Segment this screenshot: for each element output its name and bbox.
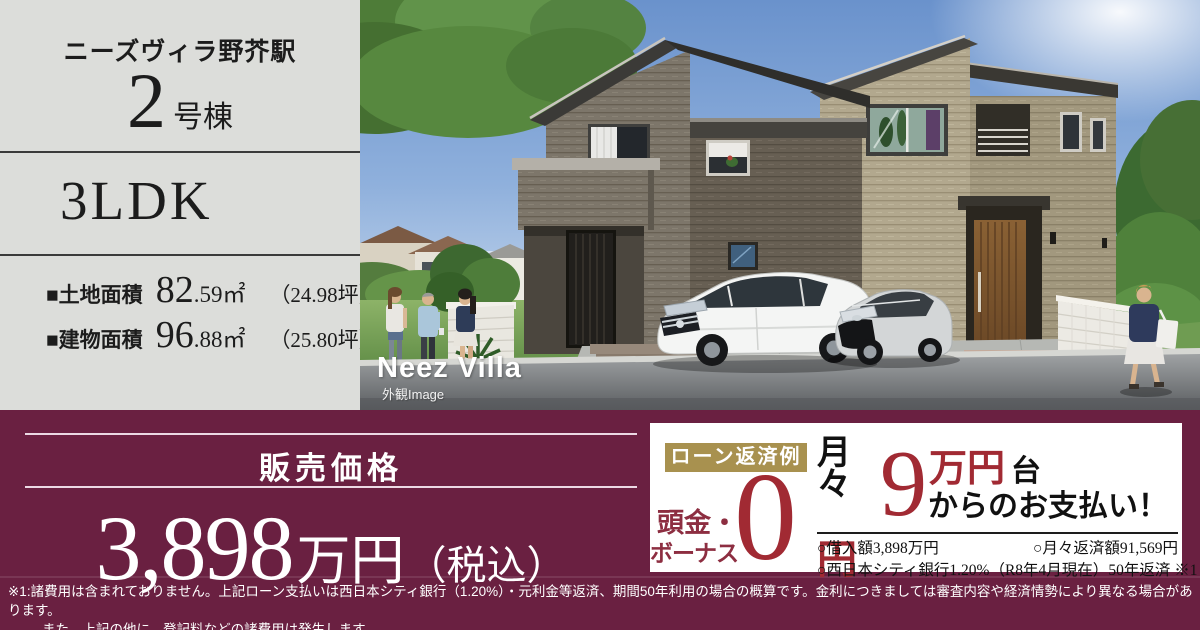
front-door-right <box>966 206 1042 354</box>
rule-line <box>25 486 637 488</box>
price-band: 販売価格 3,898万円（税込） ローン返済例 頭金・ ボーナス 0 円 月 々… <box>0 410 1200 630</box>
exterior-rendering: Neez Villa 外観Image <box>360 0 1200 410</box>
divider <box>0 151 360 153</box>
land-area-row: ■土地面積 82 .59㎡ （24.98坪） <box>46 268 348 308</box>
down-payment-value: 0 <box>734 455 797 581</box>
unit-number: 2 <box>127 57 166 144</box>
loan-detail-row: ○借入額3,898万円 ○月々返済額91,569円 <box>817 539 1178 559</box>
rendering-scene <box>360 0 1200 410</box>
monthly-tagline: からのお支払い！ <box>928 492 1168 522</box>
monthly-suffix: 台 <box>1011 457 1041 487</box>
bank-rate: ○西日本シティ銀行1.20%（R8年4月現在） <box>817 561 1108 581</box>
image-caption: 外観Image <box>382 384 444 403</box>
divider <box>817 532 1178 534</box>
footnote-line2: また、上記の他に、登記料などの諸費用は発生します。 <box>8 620 1198 630</box>
monthly-repayment: ○月々返済額91,569円 <box>1033 539 1178 559</box>
floor-plan: 3LDK <box>60 169 213 232</box>
brand-logo: Neez Villa <box>377 352 522 385</box>
footnotes: ※1:諸費用は含まれておりません。上記ローン支払いは西日本シティ銀行（1.20%… <box>8 582 1198 630</box>
monthly-value: 9 <box>880 437 927 531</box>
loan-example-box: ローン返済例 頭金・ ボーナス 0 円 月 々 9 万円 台 からのお支払い！ … <box>650 423 1182 572</box>
unit-suffix: 号棟 <box>173 101 233 134</box>
building-area-row: ■建物面積 96 .88㎡ （25.80坪） <box>46 313 348 353</box>
window-picture <box>866 104 948 156</box>
monthly-char1: 月 <box>817 438 849 470</box>
area-specs: ■土地面積 82 .59㎡ （24.98坪） ■建物面積 96 .88㎡ （25… <box>46 268 348 358</box>
balcony <box>976 104 1030 156</box>
loan-amount: ○借入額3,898万円 <box>817 539 939 559</box>
land-area-label: ■土地面積 <box>46 279 143 309</box>
front-door-left <box>566 230 616 348</box>
building-area-label: ■建物面積 <box>46 324 143 354</box>
balcony-box <box>512 158 660 230</box>
land-area-value: 82 <box>156 268 194 312</box>
loan-detail-row: ○西日本シティ銀行1.20%（R8年4月現在） 50年返済 ※1 <box>817 561 1178 581</box>
down-payment-line2: ボーナス <box>648 539 738 568</box>
price-amount: 3,898万円（税込） <box>25 502 637 594</box>
window-blue <box>728 242 758 270</box>
info-panel: ニーズヴィラ野芥駅 2号棟 3LDK ■土地面積 82 .59㎡ （24.98坪… <box>0 0 360 410</box>
building-area-value-sub: .88㎡ <box>194 320 246 354</box>
monthly-label: 月 々 <box>817 438 849 502</box>
building-area-value: 96 <box>156 313 194 357</box>
monthly-char2: 々 <box>817 470 849 502</box>
price-label: 販売価格 <box>25 443 637 488</box>
divider <box>0 254 360 256</box>
rule-line <box>25 433 637 435</box>
loan-term: 50年返済 ※1 <box>1108 561 1197 581</box>
land-area-value-sub: .59㎡ <box>194 275 246 309</box>
property-flyer: ニーズヴィラ野芥駅 2号棟 3LDK ■土地面積 82 .59㎡ （24.98坪… <box>0 0 1200 630</box>
footnote-line1: ※1:諸費用は含まれておりません。上記ローン支払いは西日本シティ銀行（1.20%… <box>8 582 1198 620</box>
down-payment-line1: 頭金・ <box>648 508 738 539</box>
monthly-unit: 万円 <box>929 450 1005 488</box>
unit-number-block: 2号棟 <box>0 60 360 142</box>
window-wing <box>706 140 750 176</box>
down-payment-label: 頭金・ ボーナス <box>648 508 738 568</box>
